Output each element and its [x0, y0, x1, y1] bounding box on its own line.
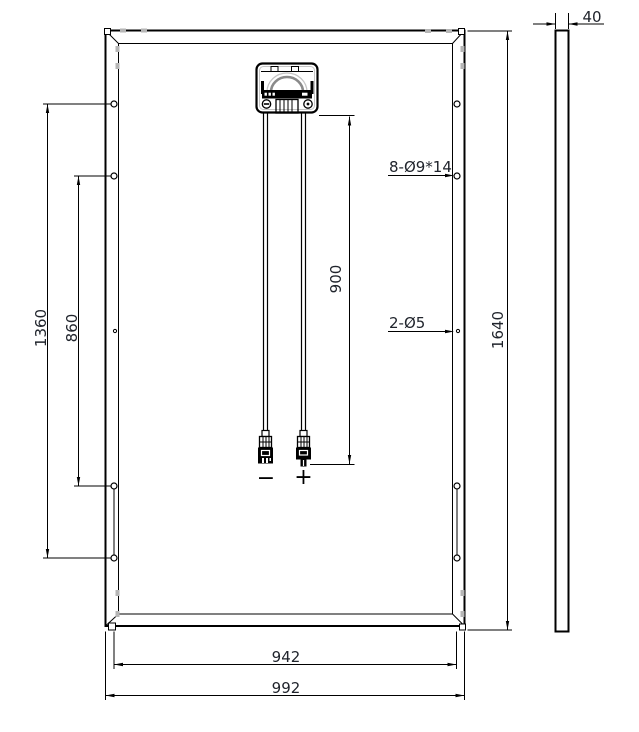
connector-collar — [300, 431, 307, 437]
junction-box-tab — [271, 67, 278, 72]
corner-key — [105, 29, 111, 35]
arrow-up — [46, 104, 49, 113]
dimension-total-height: 1640 — [468, 31, 513, 630]
grounding-hole — [113, 329, 116, 332]
technical-drawing: − + 900 860 1360 1640 — [0, 0, 639, 732]
arrow-right — [547, 22, 556, 25]
cables — [264, 113, 306, 431]
clamp-mark — [446, 29, 452, 33]
arrow-down — [348, 455, 351, 464]
junction-box-bolt — [261, 81, 264, 94]
dimension-text: 942 — [272, 648, 301, 666]
arrow-up — [506, 31, 509, 40]
cable-gland-block — [276, 100, 298, 114]
dimension-text: 900 — [327, 265, 345, 294]
junction-box-bolt — [311, 81, 314, 94]
callout-text: 2-Ø5 — [389, 314, 425, 332]
clamp-mark — [116, 590, 120, 596]
clamp-mark — [116, 46, 120, 52]
arrow-down — [77, 477, 80, 486]
label-strip-mark — [269, 93, 271, 96]
arrow-left — [114, 663, 123, 666]
grounding-hole — [456, 329, 459, 332]
callout-text: 8-Ø9*14 — [389, 158, 452, 176]
side-view-outline — [556, 31, 569, 632]
connector-body — [296, 448, 311, 460]
junction-box-tab — [292, 67, 299, 72]
clamp-mark — [461, 63, 465, 69]
clamp-mark — [425, 29, 431, 33]
label-strip-mark — [265, 93, 267, 96]
connector-negative — [258, 431, 273, 464]
mounting-hole — [111, 101, 117, 107]
polarity-negative-label: − — [257, 466, 275, 491]
arrow-right — [456, 694, 465, 697]
connector-collar — [262, 431, 269, 437]
connector-body-slot — [262, 458, 264, 463]
dimension-text: 1360 — [32, 309, 50, 347]
clamp-mark — [120, 29, 126, 33]
arrow-up — [348, 117, 351, 126]
arrow-left — [106, 694, 115, 697]
label-strip-mark — [273, 93, 275, 96]
connector-body-slot — [270, 458, 272, 461]
callout-mounting-holes: 8-Ø9*14 — [388, 158, 454, 177]
mounting-hole — [111, 173, 117, 179]
mounting-hole — [454, 173, 460, 179]
label-strip-mark — [302, 93, 308, 96]
clamp-mark — [461, 611, 465, 617]
dimension-frame-thickness: 40 — [533, 8, 604, 29]
panel-side-view — [556, 31, 569, 632]
arrow-up — [77, 176, 80, 185]
arrow-down — [506, 621, 509, 630]
clamp-mark — [116, 63, 120, 69]
polarity-positive-label: + — [294, 465, 312, 490]
arrow-down — [46, 549, 49, 558]
dimension-text: 1640 — [489, 311, 507, 349]
clamp-mark — [461, 590, 465, 596]
dimension-text: 860 — [63, 314, 81, 343]
connector-positive — [296, 431, 311, 467]
mounting-hole — [111, 483, 117, 489]
dimension-text: 40 — [582, 8, 601, 26]
dimension-cable-length: 900 — [310, 116, 355, 465]
corner-key — [109, 623, 116, 630]
callout-grounding-holes: 2-Ø5 — [388, 314, 454, 333]
junction-box-arch-inner — [271, 77, 303, 92]
arrow-left — [569, 22, 578, 25]
clamp-mark — [461, 46, 465, 52]
mounting-hole — [454, 483, 460, 489]
junction-box — [257, 64, 318, 114]
arrow-right — [448, 663, 457, 666]
mounting-hole — [454, 101, 460, 107]
mounting-hole — [111, 555, 117, 561]
corner-key — [459, 29, 465, 35]
mounting-hole — [454, 555, 460, 561]
clamp-mark — [116, 611, 120, 617]
clamp-mark — [141, 29, 147, 33]
dimension-hole-width-span: 942 — [114, 632, 457, 670]
corner-key — [460, 624, 466, 630]
dimension-hole-short-span: 860 — [63, 176, 111, 486]
connector-body-slot — [266, 458, 268, 463]
dimension-text: 992 — [272, 679, 301, 697]
